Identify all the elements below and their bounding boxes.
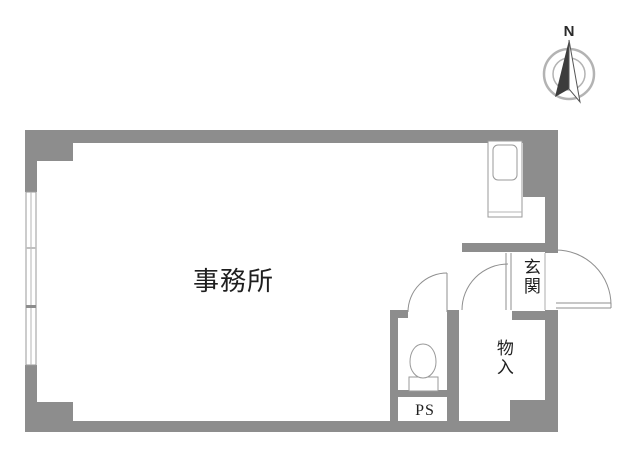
compass-needle-dark bbox=[555, 40, 569, 97]
wall-divider-toilet-storage bbox=[447, 310, 459, 421]
storage-room-label: 物入 bbox=[494, 339, 512, 377]
storage-door-swing-icon bbox=[462, 253, 511, 310]
compass-north-icon bbox=[544, 40, 594, 102]
toilet-icon bbox=[409, 344, 438, 391]
doors bbox=[408, 250, 611, 312]
wall-notch-bottom-right bbox=[510, 400, 548, 421]
wall-left-upper bbox=[25, 130, 37, 192]
wall-top bbox=[25, 130, 558, 143]
toilet-door-swing-icon bbox=[408, 273, 447, 312]
pipe-space-label: PS bbox=[406, 403, 444, 420]
wall-stub-entrance bbox=[462, 243, 550, 252]
wall-toilet-jamb bbox=[390, 310, 408, 318]
window-band-icon bbox=[26, 192, 36, 365]
office-room-label: 事務所 bbox=[193, 268, 274, 295]
floor-plan: 事務所 玄関 物入 PS N bbox=[0, 0, 640, 450]
kitchen-sink-unit-icon bbox=[488, 141, 522, 217]
wall-right-upper bbox=[545, 130, 558, 253]
wall-toilet-left bbox=[390, 310, 398, 421]
wall-bottom bbox=[25, 421, 558, 432]
wall-storage-top bbox=[512, 311, 545, 320]
entrance-door-swing-icon bbox=[545, 250, 611, 310]
walls bbox=[25, 130, 558, 432]
entrance-room-label: 玄関 bbox=[521, 258, 539, 296]
compass-north-label: N bbox=[557, 24, 581, 40]
floor-plan-drawing bbox=[0, 0, 640, 450]
